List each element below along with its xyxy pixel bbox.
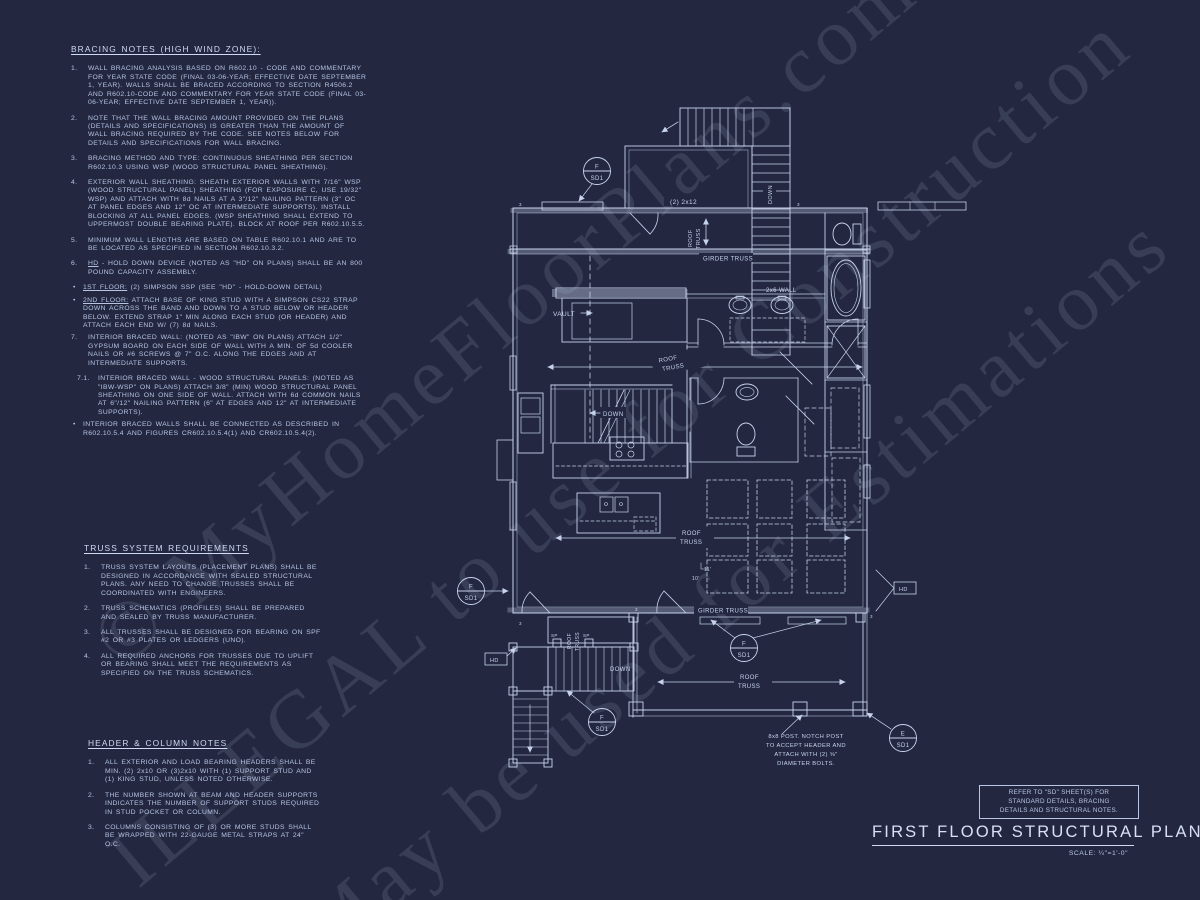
stud-count-label: 3 xyxy=(519,621,522,626)
stud-count-label: 3 xyxy=(870,614,873,619)
down-label: DOWN xyxy=(768,185,774,204)
stud-count-label: 3 xyxy=(519,202,522,207)
marker-sheet: SD1 xyxy=(465,596,478,602)
marker-sheet: SD1 xyxy=(738,653,751,659)
vault-label: VAULT xyxy=(553,311,575,318)
wall-2x6-label: 2x6 WALL xyxy=(766,288,797,294)
blueprint-sheet: © MyHomeFloorPlans.com ILLEGAL to use fo… xyxy=(0,0,1200,900)
marker-sheet: SD1 xyxy=(596,727,609,733)
roof-truss-label: ROOF xyxy=(682,531,701,537)
roof-truss-label: TRUSS xyxy=(738,684,760,690)
chimney-bump xyxy=(497,440,513,480)
roof-truss-label: ROOF xyxy=(567,633,573,649)
girder-truss-label: GIRDER TRUSS xyxy=(703,257,753,263)
stud-count-label: 3 xyxy=(635,607,638,612)
post-note: 8x8 POST. NOTCH POST TO ACCEPT HEADER AN… xyxy=(766,734,846,767)
down-label: DOWN xyxy=(610,667,631,673)
rear-stoop-stairs xyxy=(509,617,638,767)
roof-truss-label: ROOF xyxy=(688,229,694,247)
marker-letter: F xyxy=(742,642,746,648)
marker-sheet: SD1 xyxy=(897,743,910,749)
exterior-walls xyxy=(497,202,966,613)
down-label: DOWN xyxy=(603,412,624,418)
ceiling-height-label: 10' xyxy=(692,576,700,582)
fireplace xyxy=(556,288,687,342)
girder-truss-label: GIRDER TRUSS xyxy=(698,609,748,615)
porch xyxy=(629,613,867,717)
marker-letter: F xyxy=(600,716,604,722)
label-masks xyxy=(651,196,772,692)
ceiling-grid xyxy=(707,480,845,593)
marker-letter: F xyxy=(469,585,473,591)
ceiling-height-label: 11' xyxy=(704,567,711,573)
sp-label: SP xyxy=(551,633,558,638)
roof-truss-label: TRUSS xyxy=(575,632,581,651)
post-note-line: 8x8 POST. NOTCH POST xyxy=(768,734,843,740)
sheet-scale: SCALE: ¼"=1'-0" xyxy=(872,850,1128,857)
sp-label: SP xyxy=(583,633,590,638)
reference-note-box: REFER TO "SD" SHEET(S) FOR STANDARD DETA… xyxy=(979,785,1139,819)
roof-truss-label: TRUSS xyxy=(680,540,702,546)
reference-note-line: DETAILS AND STRUCTURAL NOTES. xyxy=(982,807,1136,816)
beam-label: (2) 2x12 xyxy=(670,199,697,206)
door-symbols xyxy=(522,213,858,613)
post-note-line: ATTACH WITH (2) ⅝" xyxy=(774,752,837,758)
reference-note-line: REFER TO "SD" SHEET(S) FOR xyxy=(982,789,1136,798)
hd-label: HD xyxy=(899,587,908,593)
roof-truss-label: ROOF xyxy=(740,675,759,681)
post-note-line: DIAMETER BOLTS. xyxy=(777,761,835,767)
post-note-line: TO ACCEPT HEADER AND xyxy=(766,743,846,749)
bath-fixtures xyxy=(729,223,865,522)
marker-letter: F xyxy=(595,165,599,171)
hd-label: HD xyxy=(490,658,499,664)
vault-line xyxy=(581,256,592,438)
marker-letter: E xyxy=(901,732,905,738)
roof-truss-label: TRUSS xyxy=(696,228,702,249)
marker-sheet: SD1 xyxy=(591,176,604,182)
floor-plan-drawing: (2) 2x12 GIRDER TRUSS GIRDER TRUSS ROOF … xyxy=(0,0,1200,900)
stud-count-label: 3 xyxy=(797,202,800,207)
interior-stairs xyxy=(585,390,665,443)
sheet-title: FIRST FLOOR STRUCTURAL PLAN xyxy=(872,823,1134,846)
reference-note-line: STANDARD DETAILS, BRACING xyxy=(982,798,1136,807)
